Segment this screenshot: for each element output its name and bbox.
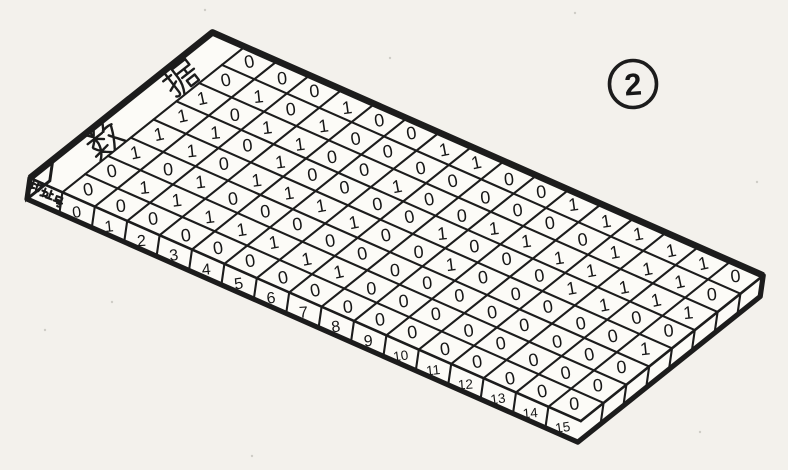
figure-badge: 2 [610, 61, 657, 108]
bit-digit: 0 [365, 278, 377, 299]
badge-number: 2 [623, 66, 643, 102]
bit-digit: 0 [115, 195, 127, 216]
bit-digit: 1 [252, 86, 264, 107]
bit-digit: 0 [729, 266, 741, 287]
bit-digit: 1 [138, 177, 150, 198]
bit-digit: 0 [479, 187, 491, 208]
bit-digit: 0 [663, 320, 675, 341]
figure-canvas: 0011110001011010011001000101111101010000… [0, 0, 788, 470]
paper-speck [756, 181, 758, 183]
bit-digit: 0 [568, 393, 580, 414]
bit-digit: 0 [706, 284, 718, 305]
bit-digit: 0 [592, 375, 604, 396]
bit-digit: 0 [276, 68, 288, 89]
bit-digit: 0 [342, 296, 354, 317]
bit-digit: 1 [186, 141, 198, 162]
paper-speck [251, 455, 253, 457]
paper-speck [389, 57, 391, 59]
bit-digit: 0 [615, 357, 627, 378]
bit-digit: 1 [436, 223, 448, 244]
paper-speck [204, 9, 206, 11]
paper-speck [699, 431, 701, 433]
bit-digit: 0 [162, 159, 174, 180]
bit-digit: 1 [682, 302, 694, 323]
bit-digit: 0 [389, 260, 401, 281]
bit-digit: 1 [639, 338, 651, 359]
memory-board-diagram: 0011110001011010011001000101111101010000… [0, 0, 788, 470]
bit-digit: 0 [503, 169, 515, 190]
paper-speck [574, 12, 576, 14]
bit-digit: 0 [456, 205, 468, 226]
paper-speck [44, 329, 46, 331]
paper-speck [111, 301, 113, 303]
bit-digit: 0 [229, 104, 241, 125]
bit-digit: 1 [209, 122, 221, 143]
bit-digit: 0 [413, 241, 425, 262]
